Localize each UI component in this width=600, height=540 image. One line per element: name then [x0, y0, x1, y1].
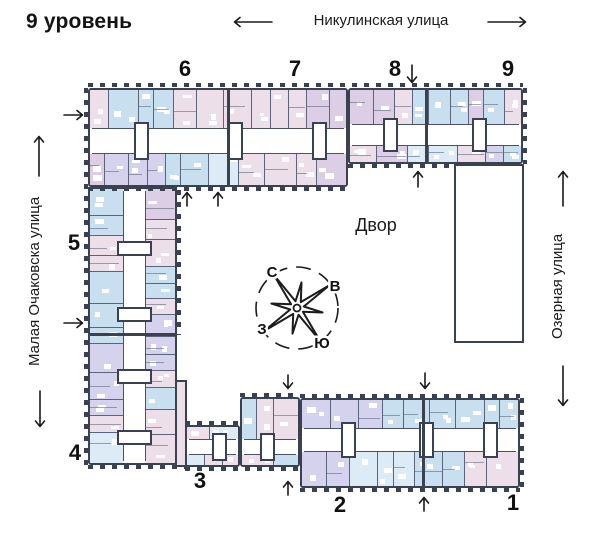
- apartment-cell: [90, 343, 123, 373]
- compass-hub: [294, 305, 301, 312]
- room-divider-line: [90, 424, 121, 425]
- fixture: [97, 394, 105, 398]
- adjacent-building-outline: [454, 164, 524, 343]
- fixture: [461, 108, 466, 112]
- fixture: [325, 173, 334, 179]
- fixture: [264, 406, 271, 411]
- apartment-cell: [146, 266, 175, 283]
- section-label-8: 8: [383, 56, 407, 82]
- room-divider-line: [297, 173, 307, 174]
- room-divider-line: [395, 106, 411, 107]
- apartment-cell: [302, 452, 326, 486]
- entrance-arrow-up-icon: [420, 498, 429, 512]
- entrance-arrow-down-icon: [419, 372, 431, 390]
- room-divider-line: [469, 104, 481, 105]
- apartment-cell: [273, 455, 298, 465]
- entrance-arrow-up-icon: [212, 191, 224, 207]
- fixture: [306, 172, 314, 177]
- apartment-cell: [146, 189, 175, 219]
- fixture: [211, 114, 216, 120]
- stair-core: [117, 369, 152, 384]
- fixture: [149, 399, 155, 403]
- room-divider-line: [429, 152, 444, 153]
- room-divider-line: [146, 228, 167, 229]
- apartment-cell: [90, 215, 123, 235]
- fixture: [158, 166, 163, 171]
- fixture: [95, 203, 104, 206]
- apartment-cell: [455, 400, 484, 428]
- stair-core: [472, 118, 487, 152]
- section-label-3: 3: [188, 468, 212, 494]
- fixture: [164, 374, 169, 377]
- balcony-ticks: [300, 394, 520, 398]
- apartment-cell: [187, 427, 209, 439]
- room-divider-line: [415, 471, 443, 472]
- fixture: [104, 364, 111, 368]
- fixture: [183, 95, 192, 98]
- room-divider-line: [451, 106, 463, 107]
- entrance-arrow-right-icon: [63, 317, 84, 329]
- floor-plan-canvas: 9 уровень Никулинская улица Малая Очаков…: [0, 0, 600, 540]
- stair-core: [117, 307, 152, 322]
- compass-rose: С В З Ю: [242, 253, 352, 363]
- stair-core: [312, 122, 327, 160]
- fixture: [310, 475, 316, 481]
- room-divider-line: [505, 111, 513, 112]
- compass-north-label: С: [267, 264, 278, 281]
- fixture: [362, 459, 368, 465]
- balcony-ticks: [185, 421, 240, 425]
- apartment-cell: [146, 283, 175, 298]
- fixture: [496, 464, 501, 469]
- balcony-ticks: [520, 398, 524, 488]
- section-label-5: 5: [62, 230, 86, 256]
- section-label-4: 4: [63, 440, 87, 466]
- room-divider-line: [148, 170, 157, 171]
- apartment-cell: [499, 400, 518, 428]
- apartment-cell: [485, 146, 504, 162]
- room-divider-line: [394, 467, 405, 468]
- room-divider-line: [90, 263, 119, 264]
- entrance-arrow-up-icon: [183, 193, 192, 207]
- fixture: [94, 119, 102, 124]
- fixture: [358, 149, 366, 154]
- room-divider-line: [239, 172, 254, 173]
- apartment-cell: [503, 146, 521, 162]
- apartment-cell: [273, 399, 298, 439]
- fixture: [296, 113, 304, 116]
- street-arrow-down-icon: [559, 366, 568, 406]
- fixture: [132, 168, 138, 174]
- apartment-cell: [382, 400, 403, 428]
- fixture: [384, 468, 392, 474]
- fixture: [148, 419, 156, 423]
- apartment-cell: [146, 219, 175, 240]
- stair-core: [117, 430, 152, 445]
- room-divider-line: [443, 469, 455, 470]
- entrance-arrow-up-icon: [214, 193, 223, 207]
- room-divider-line: [327, 473, 342, 474]
- building-band-sections-5-4: [88, 187, 177, 465]
- fixture: [260, 113, 264, 117]
- fixture: [461, 417, 470, 421]
- room-divider-line: [90, 228, 108, 229]
- fixture: [322, 94, 327, 100]
- fixture: [338, 462, 344, 467]
- balcony-ticks: [348, 164, 455, 168]
- apartment-cell: [180, 154, 208, 185]
- entrance-arrow-up-icon: [418, 496, 430, 512]
- fixture: [280, 422, 288, 426]
- fixture: [96, 408, 104, 412]
- room-divider-line: [350, 155, 371, 156]
- room-divider-line: [500, 416, 514, 417]
- entrance-arrow-up-icon: [412, 170, 424, 188]
- room-divider-line: [90, 386, 110, 387]
- apartment-cell: [90, 255, 123, 271]
- apartment-cell: [377, 452, 393, 486]
- room-divider-line: [350, 102, 365, 103]
- fixture: [161, 289, 170, 293]
- fixture: [159, 275, 167, 280]
- apartment-cell: [90, 189, 123, 215]
- fixture: [194, 163, 201, 167]
- entrance-arrow-up-icon: [414, 172, 423, 188]
- entrance-arrow-up-icon: [284, 482, 293, 496]
- room-divider-line: [289, 107, 305, 108]
- fixture: [117, 166, 124, 169]
- fixture: [261, 117, 268, 122]
- room-divider-line: [90, 248, 107, 249]
- stair-core: [134, 122, 149, 160]
- fixture: [95, 312, 100, 317]
- fixture: [95, 219, 104, 224]
- balcony-ticks: [240, 393, 300, 397]
- apartment-cell: [350, 146, 376, 162]
- fixture: [209, 121, 217, 125]
- compass-south-label: Ю: [314, 335, 329, 352]
- apartment-cell: [146, 354, 175, 370]
- compass-west-label: З: [257, 321, 266, 338]
- courtyard-label: Двор: [336, 215, 416, 236]
- room-divider-line: [458, 154, 484, 155]
- street-arrow-up-icon: [33, 135, 45, 177]
- street-arrow-down-icon: [36, 391, 45, 427]
- section-label-7: 7: [283, 56, 307, 82]
- entrance-arrow-right-icon: [64, 111, 83, 120]
- room-divider-line: [504, 152, 518, 153]
- room-divider-line: [105, 171, 119, 172]
- section-divider: [422, 398, 425, 488]
- fixture: [242, 165, 250, 169]
- apartment-cell: [251, 90, 270, 128]
- fixture: [264, 424, 270, 429]
- section-label-9: 9: [496, 56, 520, 82]
- entrance-arrow-right-icon: [64, 319, 83, 328]
- apartment-cell: [187, 455, 204, 465]
- apartment-cell: [450, 90, 469, 124]
- street-arrow-down-icon: [34, 390, 46, 428]
- apartment-cell: [428, 146, 456, 162]
- fixture: [427, 464, 433, 469]
- room-divider-line: [146, 208, 174, 209]
- corridor: [92, 128, 344, 154]
- room-divider-line: [146, 273, 166, 274]
- fixture: [111, 426, 119, 429]
- balcony-ticks: [84, 88, 88, 465]
- fixture: [148, 201, 157, 204]
- apartment-cell: [173, 90, 196, 128]
- fixture: [369, 403, 377, 407]
- room-divider-line: [265, 169, 288, 170]
- section-divider: [88, 333, 177, 336]
- fixture: [93, 175, 101, 181]
- fixture: [158, 376, 163, 380]
- compass-east-label: В: [330, 278, 341, 295]
- room-divider-line: [146, 445, 168, 446]
- apartment-cell: [504, 90, 521, 124]
- apartment-cell: [442, 452, 464, 486]
- entrance-arrow-up-icon: [181, 191, 193, 207]
- street-label-top: Никулинская улица: [296, 12, 466, 29]
- apartment-cell: [302, 400, 330, 428]
- room-divider-line: [129, 174, 142, 175]
- apartment-cell: [288, 90, 305, 128]
- fixture: [473, 411, 481, 415]
- fixture: [415, 114, 421, 118]
- fixture: [402, 113, 409, 118]
- stair-core: [383, 118, 398, 152]
- room-divider-line: [139, 106, 151, 107]
- fixture: [157, 306, 165, 309]
- apartment-cell: [146, 387, 175, 409]
- stair-core: [212, 433, 227, 461]
- entrance-arrow-right-icon: [63, 109, 84, 121]
- apartment-cell: [264, 154, 296, 185]
- apartment-cell: [428, 90, 449, 124]
- apartment-cell: [242, 399, 256, 439]
- section-label-2: 2: [328, 492, 352, 518]
- room-divider-line: [430, 412, 448, 413]
- street-arrow-right-icon: [488, 18, 526, 27]
- street-arrow-left-icon: [235, 18, 273, 27]
- apartment-cell: [104, 154, 128, 185]
- apartment-cell: [153, 90, 172, 128]
- room-divider-line: [90, 165, 99, 166]
- entrance-arrow-down-icon: [284, 375, 293, 389]
- street-arrow-up-icon: [559, 172, 568, 207]
- apartment-cell: [196, 90, 223, 128]
- building-band-section-3b: [240, 397, 300, 467]
- fixture: [191, 431, 199, 436]
- room-divider-line: [90, 443, 111, 444]
- level-title: 9 уровень: [26, 10, 132, 34]
- building-band-sections-8-9: [348, 88, 523, 164]
- section-divider: [227, 88, 230, 187]
- fixture: [156, 258, 160, 263]
- fixture: [109, 264, 115, 270]
- apartment-cell: [90, 90, 108, 128]
- fixture: [274, 95, 280, 98]
- fixture: [489, 154, 493, 158]
- room-divider-line: [146, 304, 166, 305]
- fixture: [282, 157, 289, 162]
- fixture: [512, 104, 518, 108]
- fixture: [449, 151, 454, 155]
- room-divider-line: [274, 415, 298, 416]
- room-divider-line: [359, 418, 380, 419]
- fixture: [488, 108, 494, 112]
- street-arrow-up-icon: [557, 170, 569, 207]
- room-divider-line: [90, 407, 117, 408]
- fixture: [434, 155, 439, 159]
- room-divider-line: [146, 348, 164, 349]
- fixture: [102, 289, 110, 293]
- building-band-sections-6-7: [88, 88, 348, 187]
- apartment-cell: [350, 90, 373, 124]
- fixture: [380, 479, 385, 483]
- fixture: [488, 405, 496, 411]
- room-divider-line: [383, 415, 400, 416]
- fixture: [398, 474, 405, 479]
- entrance-arrow-down-icon: [282, 374, 294, 390]
- section-label-1: 1: [501, 490, 525, 516]
- room-divider-line: [377, 156, 406, 157]
- apartment-cell: [90, 154, 104, 185]
- fixture: [96, 197, 104, 202]
- fixture: [98, 109, 103, 114]
- balcony-ticks: [88, 83, 523, 87]
- fixture: [148, 234, 152, 238]
- fixture: [161, 253, 170, 256]
- corridor: [352, 124, 519, 146]
- apartment-cell: [165, 154, 181, 185]
- fixture: [110, 247, 116, 250]
- fixture: [249, 459, 253, 462]
- fixture: [446, 418, 451, 422]
- fixture: [244, 418, 252, 424]
- fixture: [335, 116, 343, 121]
- stair-core: [228, 122, 243, 160]
- section-8-arrow-down-icon: [406, 64, 418, 84]
- room-divider-line: [374, 110, 391, 111]
- room-divider-line: [404, 414, 418, 415]
- apartment-cell: [146, 336, 175, 354]
- building-band-sections-2-1: [300, 398, 520, 488]
- fixture: [174, 176, 179, 180]
- fixture: [132, 160, 139, 163]
- apartment-cell: [90, 399, 123, 415]
- room-divider-line: [408, 156, 420, 157]
- street-label-left: Малая Очаковска улица: [26, 183, 46, 379]
- fixture: [307, 407, 316, 413]
- street-arrow-left-icon: [233, 16, 273, 28]
- apartment-cell: [393, 452, 414, 486]
- stair-core: [483, 422, 498, 458]
- apartment-cell: [90, 271, 123, 303]
- room-divider-line: [307, 106, 329, 107]
- fixture: [228, 457, 233, 462]
- fixture: [415, 107, 423, 112]
- fixture: [435, 102, 441, 108]
- section-divider: [425, 88, 428, 164]
- fixture: [334, 416, 340, 420]
- stair-core: [117, 241, 152, 256]
- apartment-cell: [358, 400, 382, 428]
- balcony-ticks: [177, 190, 181, 335]
- apartment-cell: [147, 154, 164, 185]
- room-divider-line: [465, 462, 484, 463]
- street-arrow-down-icon: [557, 365, 569, 407]
- room-divider-line: [146, 427, 162, 428]
- fixture: [156, 455, 165, 458]
- corridor: [123, 191, 146, 461]
- fixture: [319, 412, 324, 416]
- room-divider-line: [484, 104, 498, 105]
- fixture: [183, 121, 190, 126]
- fixture: [93, 166, 101, 172]
- section-8-arrow-down-icon: [408, 65, 417, 83]
- room-divider-line: [154, 109, 169, 110]
- apartment-cell: [329, 90, 346, 128]
- entrance-arrow-up-icon: [282, 480, 294, 496]
- street-arrow-up-icon: [35, 137, 44, 177]
- section-label-6: 6: [173, 56, 197, 82]
- room-divider-line: [146, 362, 164, 363]
- fixture: [142, 94, 150, 99]
- street-arrow-right-icon: [487, 16, 527, 28]
- stair-core: [341, 422, 356, 458]
- room-divider-line: [174, 111, 196, 112]
- fixture: [164, 320, 173, 326]
- street-label-right: Озерная улица: [549, 224, 569, 348]
- fixture: [413, 150, 419, 154]
- fixture: [388, 420, 392, 424]
- fixture: [508, 403, 513, 409]
- stair-core: [260, 433, 275, 461]
- balcony-ticks: [523, 88, 527, 164]
- fixture: [299, 163, 304, 167]
- building-band-section-3a: [185, 425, 240, 467]
- entrance-arrow-down-icon: [421, 373, 430, 389]
- apartment-cell: [270, 90, 289, 128]
- room-divider-line: [181, 169, 201, 170]
- fixture: [253, 173, 261, 176]
- fixture: [114, 111, 120, 117]
- fixture: [319, 168, 325, 172]
- balcony-ticks: [88, 465, 185, 469]
- room-divider-line: [486, 152, 503, 153]
